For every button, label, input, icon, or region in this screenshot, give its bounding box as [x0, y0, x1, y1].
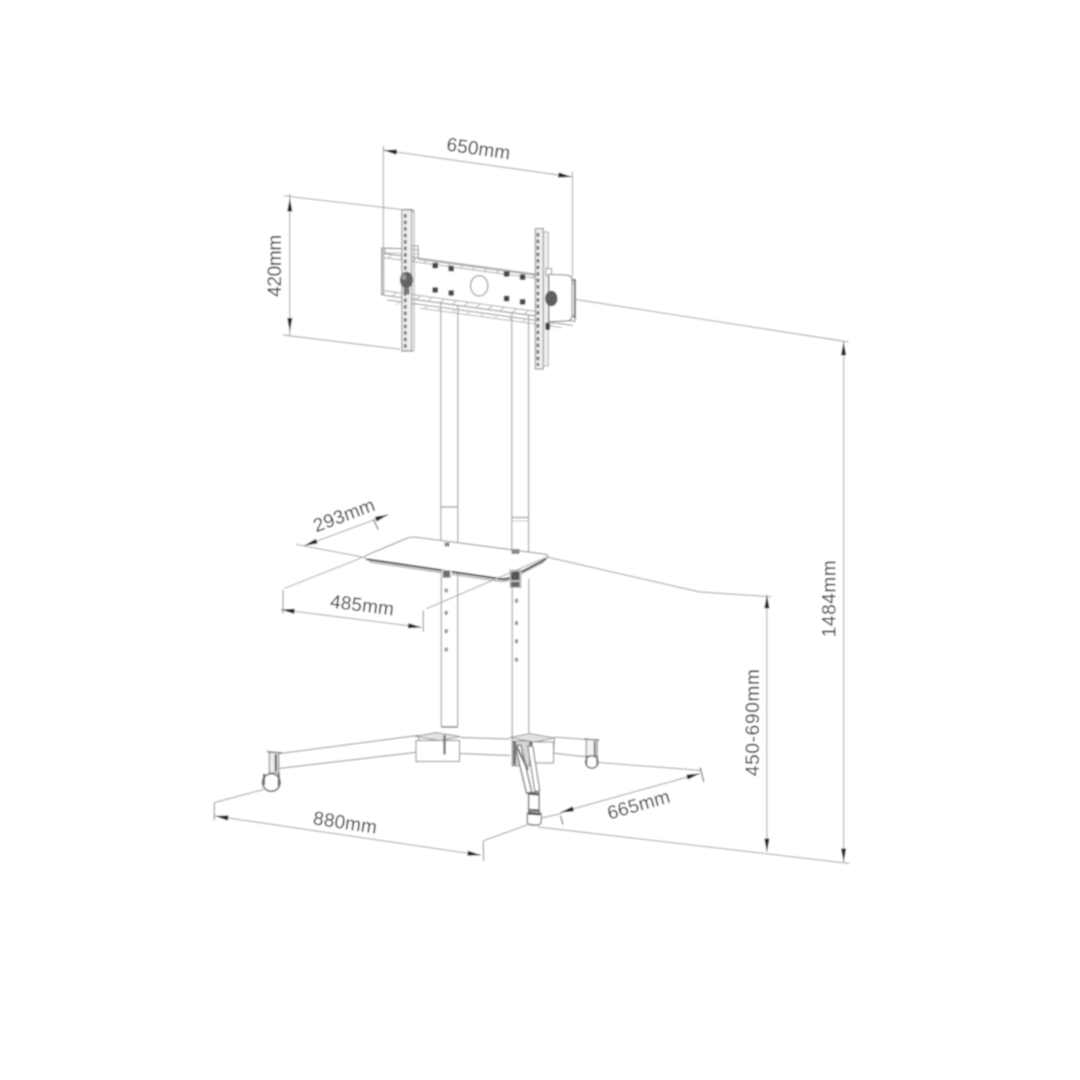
svg-text:420mm: 420mm: [265, 235, 286, 297]
svg-text:1484mm: 1484mm: [819, 560, 840, 638]
svg-text:450-690mm: 450-690mm: [743, 668, 764, 776]
